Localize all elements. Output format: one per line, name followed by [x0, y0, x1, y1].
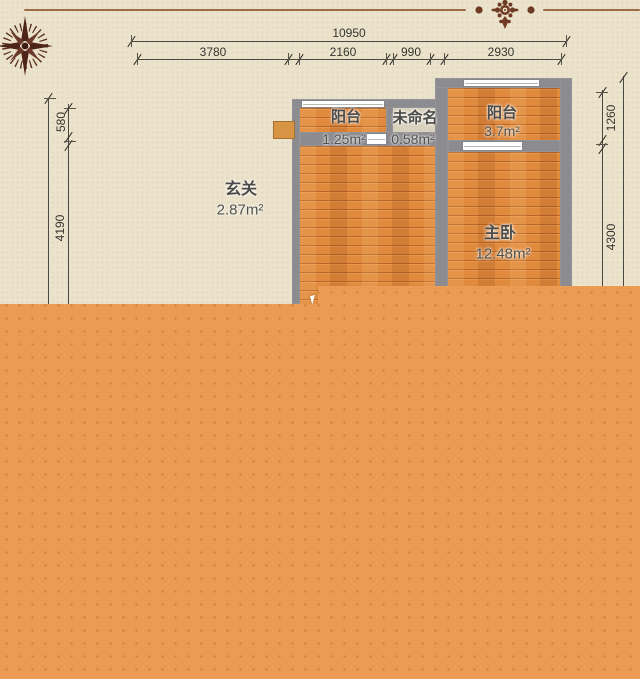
room-floor-hall[interactable]	[300, 146, 435, 304]
dimension-stub	[64, 141, 76, 142]
room-name-balcony-right: 阳台	[487, 102, 517, 123]
dim-label-segment: 3780	[200, 45, 227, 59]
dim-line-top-total	[131, 41, 566, 42]
dim-line-right-outer	[623, 76, 624, 300]
dim-line-top-segments	[137, 59, 561, 60]
room-area-balcony-left: 1.25m²	[322, 131, 366, 147]
dim-label-segment: 2160	[330, 45, 357, 59]
dimension-stub	[137, 53, 138, 65]
dimension-stub	[393, 53, 394, 65]
room-name-unnamed: 未命名	[392, 107, 437, 128]
dim-line-right-inner	[602, 90, 603, 300]
room-area-unnamed: 0.58m²	[391, 131, 435, 147]
dimension-stub	[596, 92, 608, 93]
dimension-stub	[64, 108, 76, 109]
dimension-stub	[131, 35, 132, 47]
damask-flower-ornament-icon	[470, 0, 540, 32]
room-name-entry: 玄关	[225, 175, 257, 199]
dimension-stub	[386, 53, 387, 65]
dim-label-segment: 990	[401, 45, 421, 59]
dimension-stub	[566, 35, 567, 47]
dim-label-segment: 1260	[604, 105, 618, 132]
dimension-stub	[430, 53, 431, 65]
wall-right	[560, 78, 572, 300]
compass-rose-icon	[0, 15, 56, 77]
room-area-balcony-right: 3.7m²	[484, 123, 520, 139]
dim-line-left-outer	[48, 98, 49, 310]
top-border-line-left	[24, 9, 466, 11]
dim-label-total: 10950	[332, 26, 365, 40]
window-mid-left	[366, 133, 387, 145]
dimension-stub	[561, 53, 562, 65]
dim-label-segment: 2930	[488, 45, 515, 59]
window-master-bedroom	[462, 141, 523, 151]
dim-label-segment: 4300	[604, 224, 618, 251]
room-area-master-bedroom: 12.48m²	[475, 246, 530, 263]
window-balcony-right	[463, 79, 540, 87]
top-border-line-right	[543, 9, 640, 11]
dim-label-segment: 580	[54, 112, 68, 132]
exterior-flue-box	[273, 121, 295, 139]
dimension-stub	[596, 144, 608, 145]
dim-label-segment: 4190	[53, 215, 67, 242]
dimension-stub	[444, 53, 445, 65]
dimension-stub	[288, 53, 289, 65]
room-name-balcony-left: 阳台	[331, 106, 361, 127]
dimension-stub	[44, 98, 56, 99]
room-name-master-bedroom: 主卧	[484, 219, 516, 243]
floor-plan-canvas: 10950 3780 2160 990 2930 580 4190 1260 4…	[0, 0, 640, 679]
room-area-entry: 2.87m²	[217, 202, 264, 219]
dimension-stub	[299, 53, 300, 65]
